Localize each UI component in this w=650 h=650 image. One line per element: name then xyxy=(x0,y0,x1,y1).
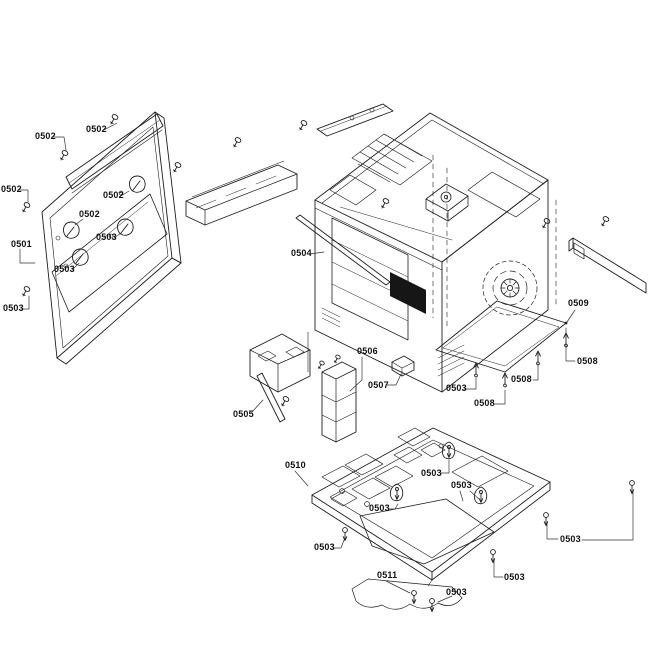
leader-lines xyxy=(19,123,633,602)
trim-strip-0505 xyxy=(257,373,285,422)
screw-icon xyxy=(540,218,550,230)
base-assembly xyxy=(312,428,634,612)
screw-icon xyxy=(491,550,496,563)
rod-0504 xyxy=(296,215,390,285)
screw-icon xyxy=(343,528,348,541)
screw-icon xyxy=(58,150,68,162)
screw-icon xyxy=(108,114,118,126)
knob xyxy=(63,222,79,238)
parts-diagram-canvas: 0502050205020502050205010503050305030504… xyxy=(0,0,650,650)
screw-icon xyxy=(317,360,325,369)
duct-channel xyxy=(308,332,356,442)
screw-icon xyxy=(630,481,635,494)
door-panel xyxy=(20,112,181,364)
screw-icon xyxy=(171,162,181,174)
screw-boss xyxy=(474,487,486,504)
screw-up-icon xyxy=(503,373,508,387)
screw-icon xyxy=(599,216,609,228)
diagram-artwork xyxy=(0,0,650,650)
handle-trim xyxy=(66,114,163,193)
screw-icon xyxy=(430,599,435,612)
screw-icon xyxy=(20,286,30,298)
screw-icon xyxy=(333,354,341,363)
screw-icon xyxy=(379,198,389,210)
convection-fan xyxy=(483,261,537,315)
knob xyxy=(117,219,133,235)
top-trim xyxy=(297,104,393,136)
screw-icon xyxy=(412,591,417,604)
latch-bracket xyxy=(250,334,325,407)
screw-up-icon xyxy=(474,363,479,377)
screw-icon xyxy=(20,202,30,214)
knob xyxy=(72,249,88,265)
screw-icon xyxy=(544,513,549,526)
screw-icon xyxy=(297,120,307,132)
screw-icon xyxy=(279,396,289,408)
support-bracket xyxy=(171,137,297,225)
oven-cabinet xyxy=(315,113,556,392)
control-cluster xyxy=(322,447,422,506)
bottom-cover xyxy=(352,579,462,609)
screw-up-icon xyxy=(536,351,541,365)
screw-icon xyxy=(231,137,241,149)
knob xyxy=(129,176,145,192)
